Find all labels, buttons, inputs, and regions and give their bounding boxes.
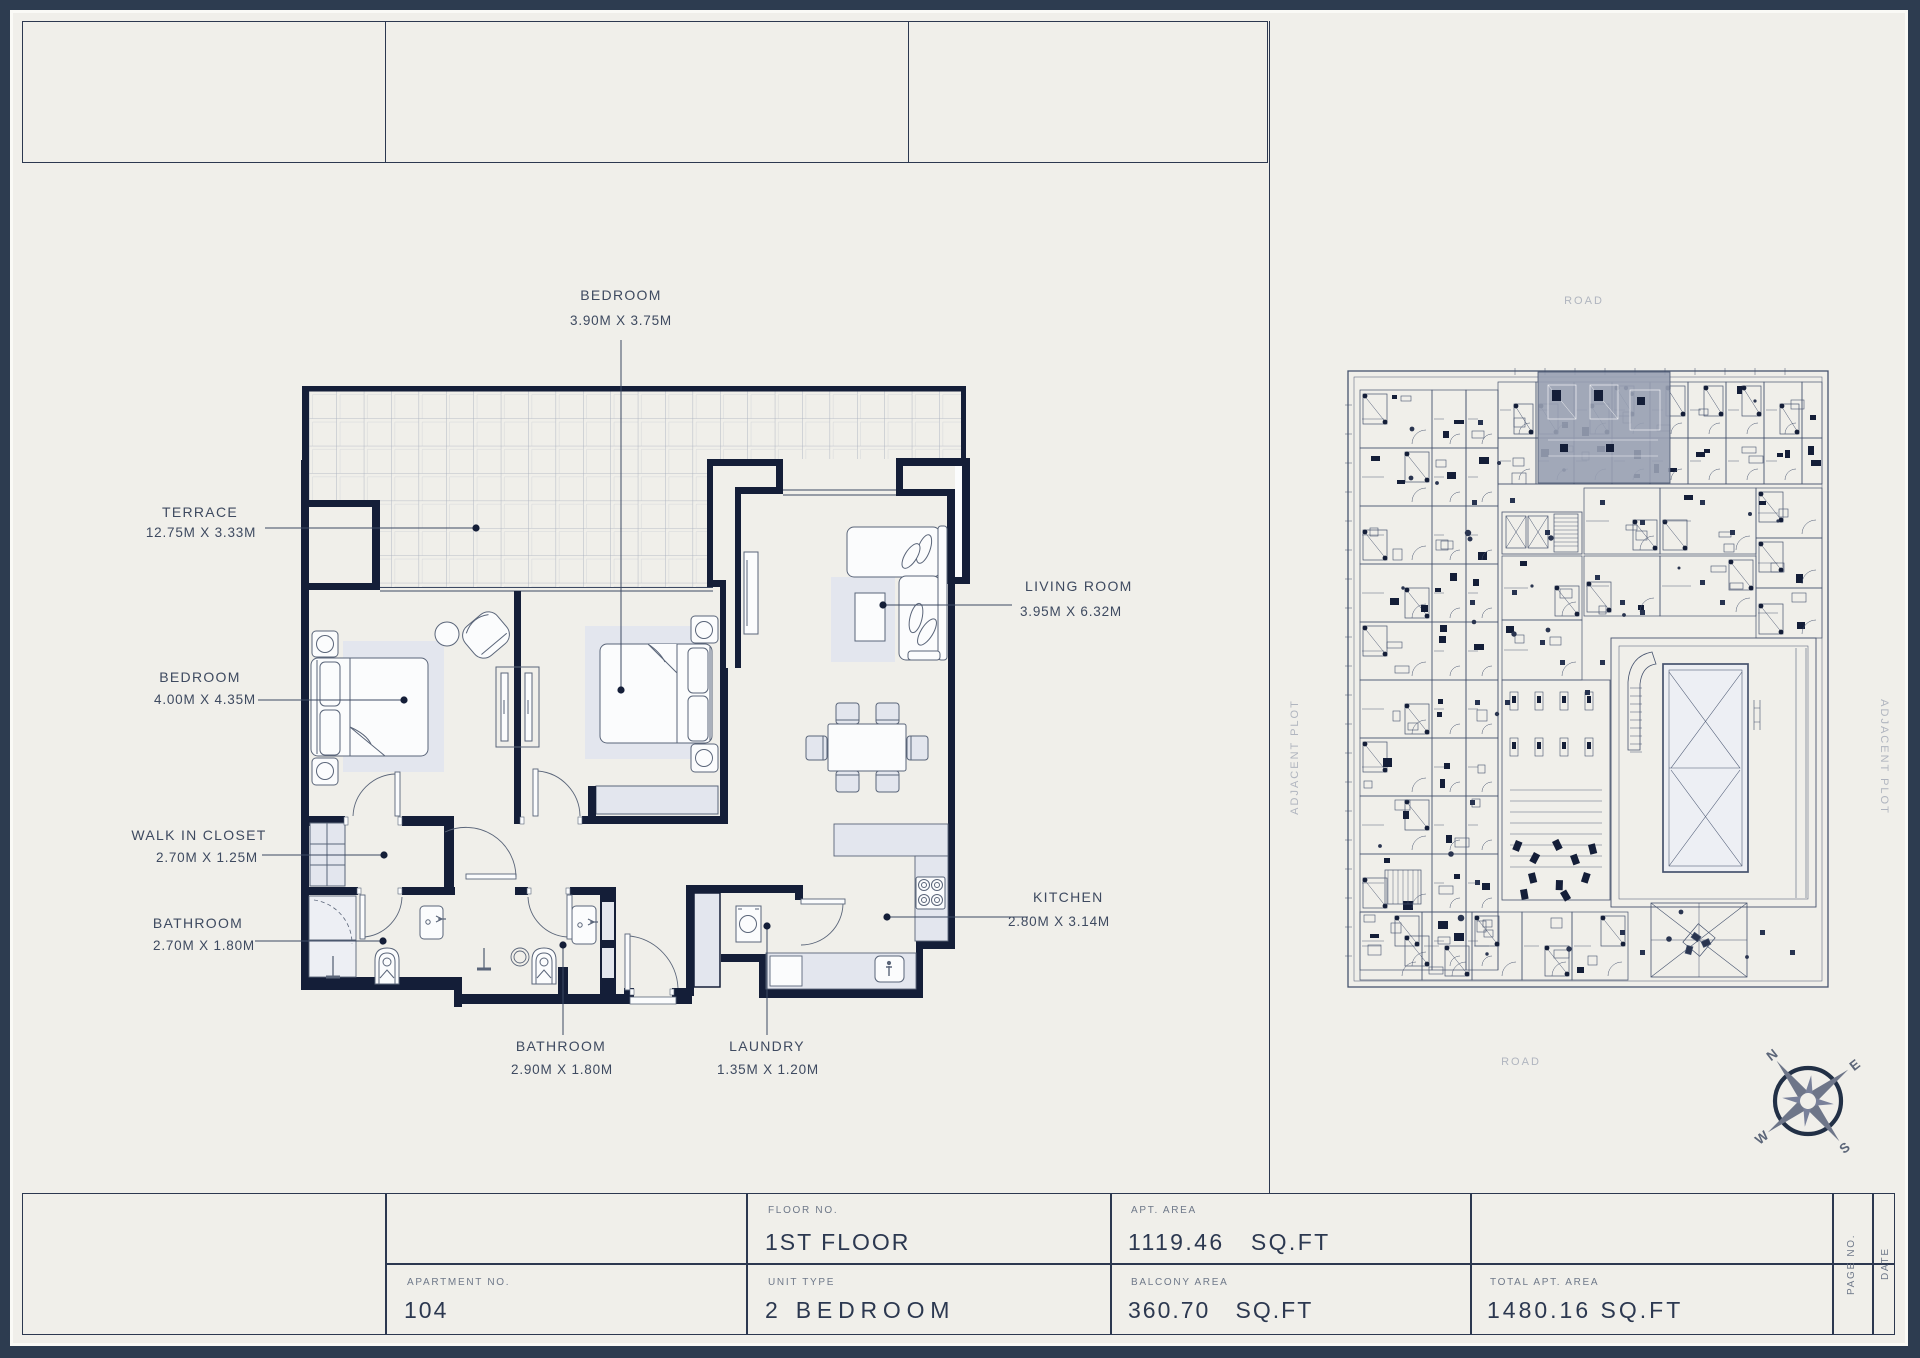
svg-text:BEDROOM: BEDROOM [159, 669, 240, 685]
svg-text:1.35M X 1.20M: 1.35M X 1.20M [717, 1062, 819, 1077]
svg-text:BEDROOM: BEDROOM [580, 287, 661, 303]
svg-text:ADJACENT PLOT: ADJACENT PLOT [1878, 699, 1890, 815]
svg-text:S: S [1836, 1139, 1852, 1156]
svg-text:E: E [1847, 1056, 1863, 1073]
svg-text:BATHROOM: BATHROOM [516, 1038, 606, 1054]
svg-text:4.00M X 4.35M: 4.00M X 4.35M [154, 692, 256, 707]
svg-text:2.70M X 1.25M: 2.70M X 1.25M [156, 850, 258, 865]
svg-text:KITCHEN: KITCHEN [1033, 889, 1104, 905]
svg-text:ROAD: ROAD [1501, 1056, 1541, 1068]
svg-text:LIVING ROOM: LIVING ROOM [1025, 578, 1133, 594]
svg-text:2.70M X 1.80M: 2.70M X 1.80M [153, 938, 255, 953]
svg-text:ADJACENT PLOT: ADJACENT PLOT [1289, 699, 1301, 815]
svg-text:3.90M X 3.75M: 3.90M X 3.75M [570, 313, 672, 328]
svg-text:WALK IN CLOSET: WALK IN CLOSET [131, 827, 266, 843]
svg-text:2.80M X 3.14M: 2.80M X 3.14M [1008, 914, 1110, 929]
svg-text:LAUNDRY: LAUNDRY [729, 1038, 805, 1054]
svg-text:12.75M X 3.33M: 12.75M X 3.33M [146, 525, 256, 540]
svg-text:W: W [1752, 1128, 1771, 1148]
svg-text:N: N [1764, 1046, 1781, 1064]
svg-text:3.95M X 6.32M: 3.95M X 6.32M [1020, 604, 1122, 619]
svg-text:2.90M X 1.80M: 2.90M X 1.80M [511, 1062, 613, 1077]
svg-text:TERRACE: TERRACE [162, 504, 238, 520]
svg-text:ROAD: ROAD [1564, 295, 1604, 307]
svg-text:BATHROOM: BATHROOM [153, 915, 243, 931]
